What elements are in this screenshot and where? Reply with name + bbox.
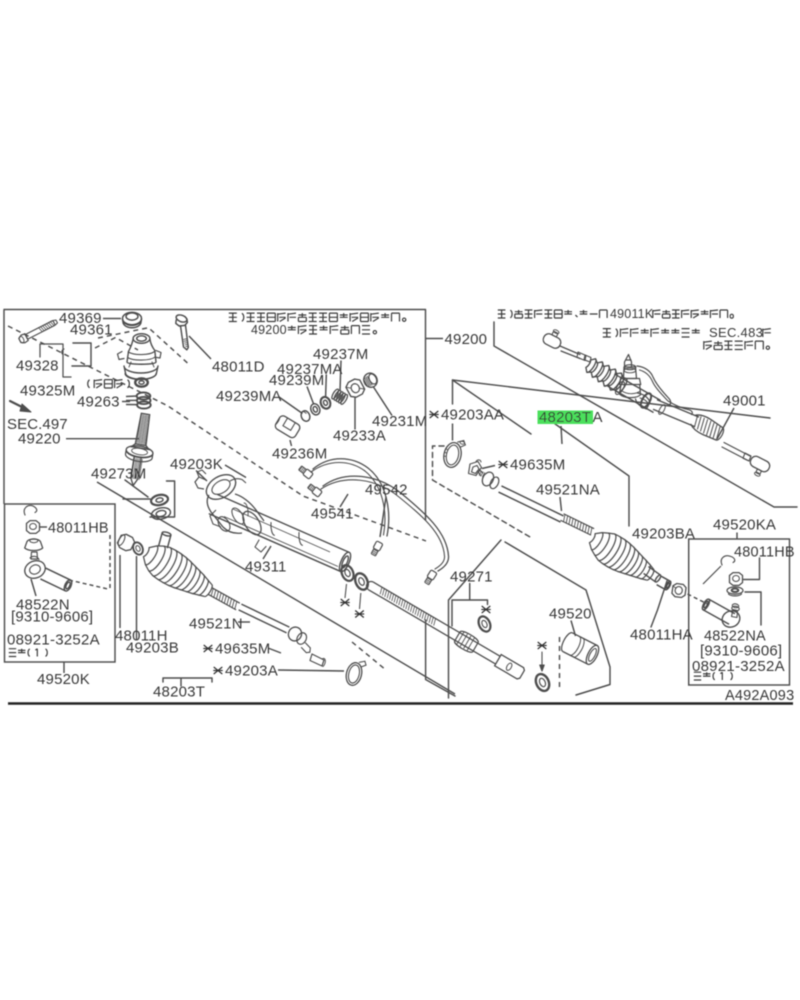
svg-text:49271: 49271 xyxy=(450,569,493,586)
svg-text:49011K: 49011K xyxy=(610,307,654,321)
svg-text:49203A: 49203A xyxy=(225,663,278,680)
svg-text:08921-3252A: 08921-3252A xyxy=(692,658,785,675)
svg-text:49328: 49328 xyxy=(16,358,59,375)
svg-text:49200: 49200 xyxy=(445,331,488,348)
svg-text:49263: 49263 xyxy=(77,394,120,411)
svg-text:49521NA: 49521NA xyxy=(536,482,600,499)
svg-text:[9310-9606]: [9310-9606] xyxy=(11,609,93,626)
svg-text:A492A093: A492A093 xyxy=(725,688,794,704)
svg-text:A: A xyxy=(593,409,603,426)
svg-text:49542: 49542 xyxy=(365,482,408,499)
svg-text:49521N: 49521N xyxy=(189,616,243,633)
svg-text:49203AA: 49203AA xyxy=(441,407,504,424)
svg-text:49520KA: 49520KA xyxy=(713,517,776,534)
svg-text:49239MA: 49239MA xyxy=(216,388,282,405)
svg-text:48203T: 48203T xyxy=(153,684,205,701)
svg-text:49203BA: 49203BA xyxy=(632,526,695,543)
svg-text:49001: 49001 xyxy=(723,393,766,410)
svg-text:49520: 49520 xyxy=(549,606,592,623)
svg-text:49239M: 49239M xyxy=(269,372,324,389)
svg-text:48011HB: 48011HB xyxy=(734,545,795,561)
svg-text:49325M: 49325M xyxy=(20,383,75,400)
svg-text:SEC.483: SEC.483 xyxy=(709,325,763,340)
svg-text:49200: 49200 xyxy=(251,323,287,337)
svg-text:49231M: 49231M xyxy=(372,413,427,430)
svg-text:49635M: 49635M xyxy=(215,641,270,658)
svg-text:49203K: 49203K xyxy=(170,456,223,473)
svg-text:49541: 49541 xyxy=(311,506,354,523)
svg-text:49311: 49311 xyxy=(245,559,287,576)
svg-text:49220: 49220 xyxy=(18,431,61,448)
svg-text:49233A: 49233A xyxy=(333,428,386,445)
svg-text:08921-3252A: 08921-3252A xyxy=(7,632,100,649)
svg-text:49236M: 49236M xyxy=(272,446,327,463)
svg-text:48011D: 48011D xyxy=(212,359,265,376)
svg-text:49203B: 49203B xyxy=(126,640,179,657)
svg-text:49520K: 49520K xyxy=(37,671,90,688)
svg-text:48011HB: 48011HB xyxy=(48,521,109,537)
svg-text:[9310-9606]: [9310-9606] xyxy=(700,643,782,660)
svg-text:48203T: 48203T xyxy=(539,409,591,426)
svg-text:49273M: 49273M xyxy=(91,466,146,483)
svg-text:49361: 49361 xyxy=(70,322,113,339)
svg-text:49635M: 49635M xyxy=(510,457,565,474)
svg-text:48011HA: 48011HA xyxy=(630,627,693,644)
